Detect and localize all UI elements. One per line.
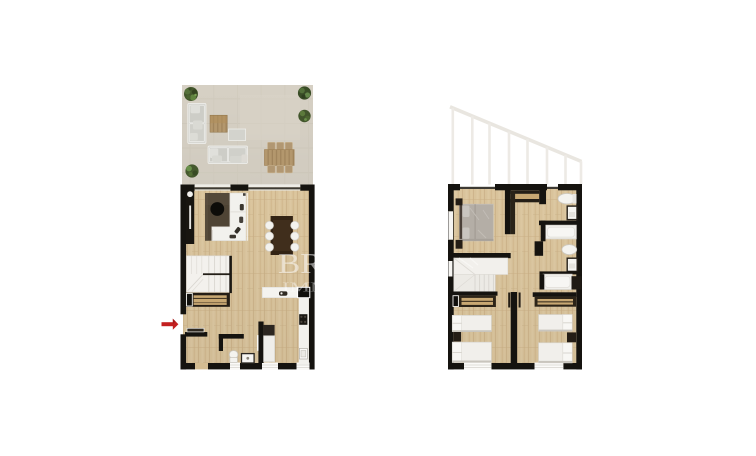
svg-text:BRILLANTes: BRILLANTes (278, 249, 468, 280)
svg-text:IMMOBILIEN: IMMOBILIEN (282, 280, 422, 295)
